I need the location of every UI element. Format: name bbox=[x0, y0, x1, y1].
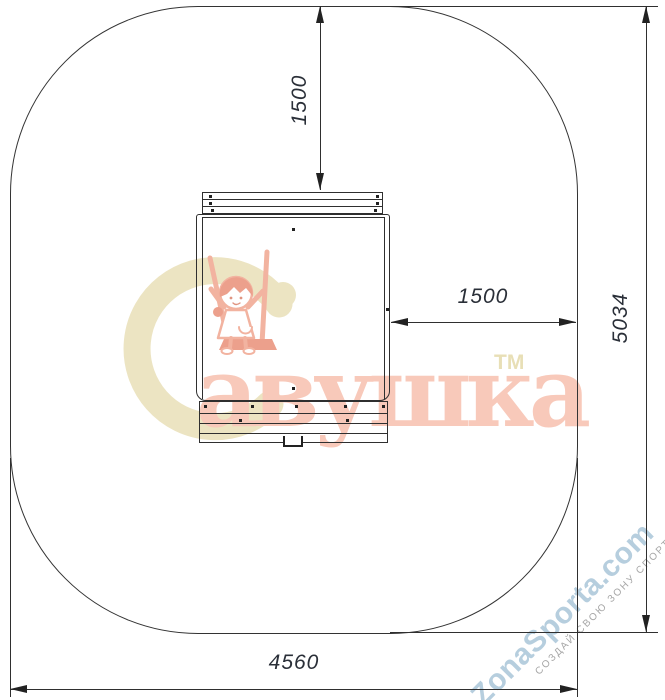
dim-line-total-width bbox=[10, 689, 577, 690]
bolt-dot bbox=[292, 387, 295, 390]
bolt-dot bbox=[382, 405, 385, 408]
dim-arrow-down bbox=[642, 615, 650, 632]
dim-label-total-width: 4560 bbox=[254, 649, 334, 677]
base-bracket bbox=[283, 436, 303, 447]
top-beam-line bbox=[202, 206, 383, 207]
bolt-dot bbox=[374, 209, 377, 212]
drawing-canvas: авушка ТМ ZonaSporta.com СОЗДАЙ СВОЮ ЗОН… bbox=[0, 0, 665, 700]
bolt-dot bbox=[344, 405, 347, 408]
body-inner-line bbox=[384, 217, 385, 399]
dim-label-right-offset: 1500 bbox=[443, 283, 523, 311]
dim-line-right-offset bbox=[391, 322, 576, 323]
dim-arrow-left bbox=[10, 685, 27, 693]
bolt-dot bbox=[239, 419, 242, 422]
dim-line-total-height bbox=[646, 6, 647, 632]
dim-arrow-up bbox=[316, 6, 324, 23]
dim-label-top-offset: 1500 bbox=[280, 70, 320, 130]
extension-line-left bbox=[10, 458, 11, 697]
base-line bbox=[199, 423, 388, 424]
base-line bbox=[199, 413, 388, 414]
dim-arrow-up bbox=[642, 6, 650, 23]
dim-arrow-right bbox=[559, 318, 576, 326]
bolt-dot bbox=[346, 419, 349, 422]
extension-line-top bbox=[390, 6, 658, 7]
dim-arrow-left bbox=[391, 318, 408, 326]
bolt-dot bbox=[386, 308, 389, 311]
equipment-body bbox=[196, 214, 390, 401]
bolt-dot bbox=[292, 228, 295, 231]
equipment-top-beam bbox=[202, 192, 383, 214]
base-line bbox=[199, 433, 388, 434]
bolt-dot bbox=[209, 202, 212, 205]
top-beam-line bbox=[202, 199, 383, 200]
body-inner-line bbox=[202, 217, 385, 218]
bolt-dot bbox=[295, 405, 298, 408]
bolt-dot bbox=[209, 195, 212, 198]
dim-arrow-right bbox=[560, 685, 577, 693]
dim-arrow-down bbox=[316, 173, 324, 190]
bolt-dot bbox=[211, 209, 214, 212]
body-inner-line bbox=[202, 217, 203, 399]
bolt-dot bbox=[376, 195, 379, 198]
extension-line-right bbox=[577, 458, 578, 697]
dim-label-total-height: 5034 bbox=[601, 288, 641, 348]
bolt-dot bbox=[204, 405, 207, 408]
bolt-dot bbox=[251, 405, 254, 408]
extension-line-bottom bbox=[390, 632, 658, 633]
bolt-dot bbox=[376, 202, 379, 205]
